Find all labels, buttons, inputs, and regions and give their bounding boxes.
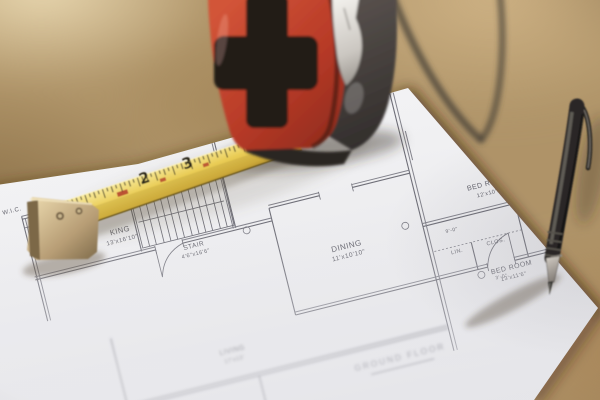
- tape-hook: [27, 197, 99, 260]
- pen-tip: [548, 281, 553, 295]
- pen-barrel: [552, 106, 577, 258]
- lanyard-cord: [392, 0, 502, 140]
- photo-scene: KING 13'x16'10" STAIR 4'6"x16'6" DINING …: [0, 0, 600, 400]
- foreground-objects: 2 3: [0, 0, 600, 400]
